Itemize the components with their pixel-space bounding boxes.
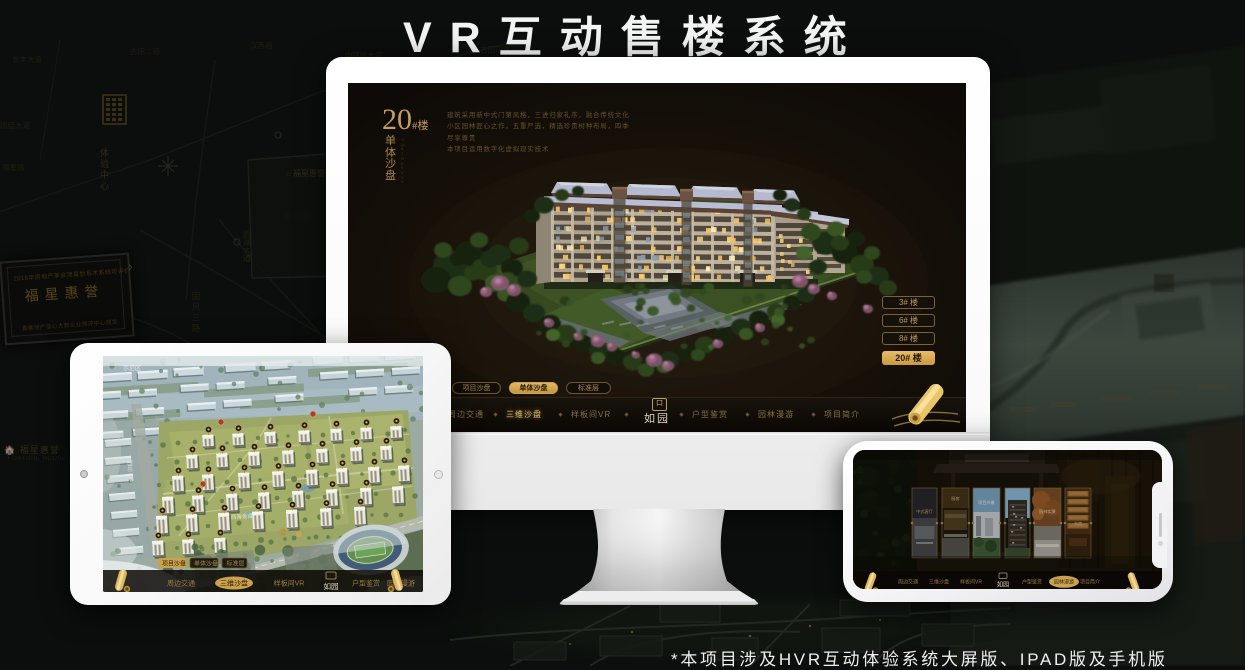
svg-text:古田二路: 古田二路 — [130, 46, 160, 56]
svg-text:三维沙盘: 三维沙盘 — [929, 579, 949, 586]
svg-text:样板间VR: 样板间VR — [274, 579, 305, 588]
svg-text:户型鉴赏: 户型鉴赏 — [1022, 579, 1042, 586]
svg-text:如园: 如园 — [324, 581, 339, 591]
svg-text:国风三路: 国风三路 — [191, 292, 201, 334]
svg-text:项目简介: 项目简介 — [1080, 579, 1100, 586]
svg-text:福星路: 福星路 — [2, 162, 25, 172]
svg-text:团结大道: 团结大道 — [0, 120, 30, 130]
svg-text:体验中心: 体验中心 — [99, 147, 109, 192]
svg-text:样板间VR: 样板间VR — [960, 579, 982, 586]
svg-text:汉西路: 汉西路 — [250, 40, 273, 50]
svg-text:周边交通: 周边交通 — [898, 579, 918, 586]
svg-text:园林漫游: 园林漫游 — [1054, 579, 1074, 586]
svg-text:⌂ 福星惠誉: ⌂ 福星惠誉 — [286, 168, 325, 178]
svg-text:项目沙盘: 项目沙盘 — [162, 560, 186, 568]
svg-text:如园: 如园 — [997, 581, 1009, 589]
svg-text:长丰大道: 长丰大道 — [12, 54, 42, 64]
svg-text:三维沙盘: 三维沙盘 — [220, 579, 248, 588]
svg-text:户型鉴赏: 户型鉴赏 — [352, 579, 380, 588]
svg-text:周边交通: 周边交通 — [167, 579, 195, 588]
svg-text:单体沙盘: 单体沙盘 — [194, 560, 218, 568]
svg-text:标准层: 标准层 — [227, 560, 245, 568]
